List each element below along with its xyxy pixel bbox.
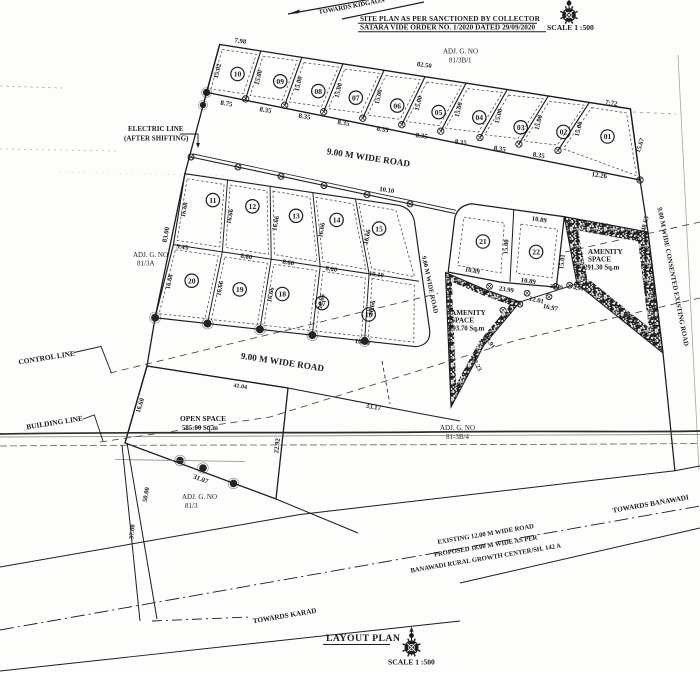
svg-text:ADJ. G. NO: ADJ. G. NO xyxy=(133,251,168,259)
svg-text:18: 18 xyxy=(279,290,287,299)
svg-text:06: 06 xyxy=(393,101,401,110)
svg-text:SPACE: SPACE xyxy=(588,256,611,264)
svg-text:OPEN SPACE: OPEN SPACE xyxy=(180,414,226,423)
svg-text:(AFTER SHIFTING): (AFTER SHIFTING) xyxy=(124,135,189,143)
svg-text:81/3A: 81/3A xyxy=(137,260,155,268)
svg-text:12: 12 xyxy=(249,202,257,211)
svg-text:SATARA VIDE ORDER NO. 1/2020 D: SATARA VIDE ORDER NO. 1/2020 DATED 29/09… xyxy=(360,23,536,32)
svg-text:07: 07 xyxy=(352,93,360,102)
svg-text:09: 09 xyxy=(276,77,284,86)
svg-text:SCALE 1 :500: SCALE 1 :500 xyxy=(547,23,594,32)
svg-text:10: 10 xyxy=(234,70,242,79)
svg-text:04: 04 xyxy=(476,113,484,122)
svg-text:ADJ. G. NO: ADJ. G. NO xyxy=(443,48,478,56)
svg-text:21: 21 xyxy=(479,237,487,246)
svg-text:SPACE: SPACE xyxy=(451,317,474,325)
svg-text:LAYOUT PLAN: LAYOUT PLAN xyxy=(326,633,400,644)
svg-text:02: 02 xyxy=(560,128,568,137)
svg-text:81/3B/1: 81/3B/1 xyxy=(449,57,472,65)
svg-text:05: 05 xyxy=(435,108,443,117)
svg-text:14: 14 xyxy=(333,216,341,225)
svg-text:13: 13 xyxy=(292,212,300,221)
svg-text:15: 15 xyxy=(375,224,383,233)
svg-text:81-3B/4: 81-3B/4 xyxy=(446,433,469,441)
svg-text:20: 20 xyxy=(188,276,196,285)
svg-text:ADJ. G. NO: ADJ. G. NO xyxy=(182,493,217,501)
svg-text:291.30 Sq.m: 291.30 Sq.m xyxy=(584,265,620,272)
svg-text:11: 11 xyxy=(209,196,216,205)
svg-text:585:00 Sq.m: 585:00 Sq.m xyxy=(182,425,218,432)
svg-text:SCALE 1 :500: SCALE 1 :500 xyxy=(388,658,435,667)
svg-text:22: 22 xyxy=(532,248,540,257)
svg-text:08: 08 xyxy=(315,87,323,96)
svg-text:01: 01 xyxy=(604,132,612,141)
svg-text:81/3: 81/3 xyxy=(185,502,198,510)
svg-text:03: 03 xyxy=(517,123,525,132)
svg-text:15.00: 15.00 xyxy=(502,238,510,254)
svg-text:ELECTRIC LINE: ELECTRIC LINE xyxy=(128,125,184,133)
svg-text:19: 19 xyxy=(236,285,244,294)
svg-text:293.70 Sq.m: 293.70 Sq.m xyxy=(449,326,485,333)
